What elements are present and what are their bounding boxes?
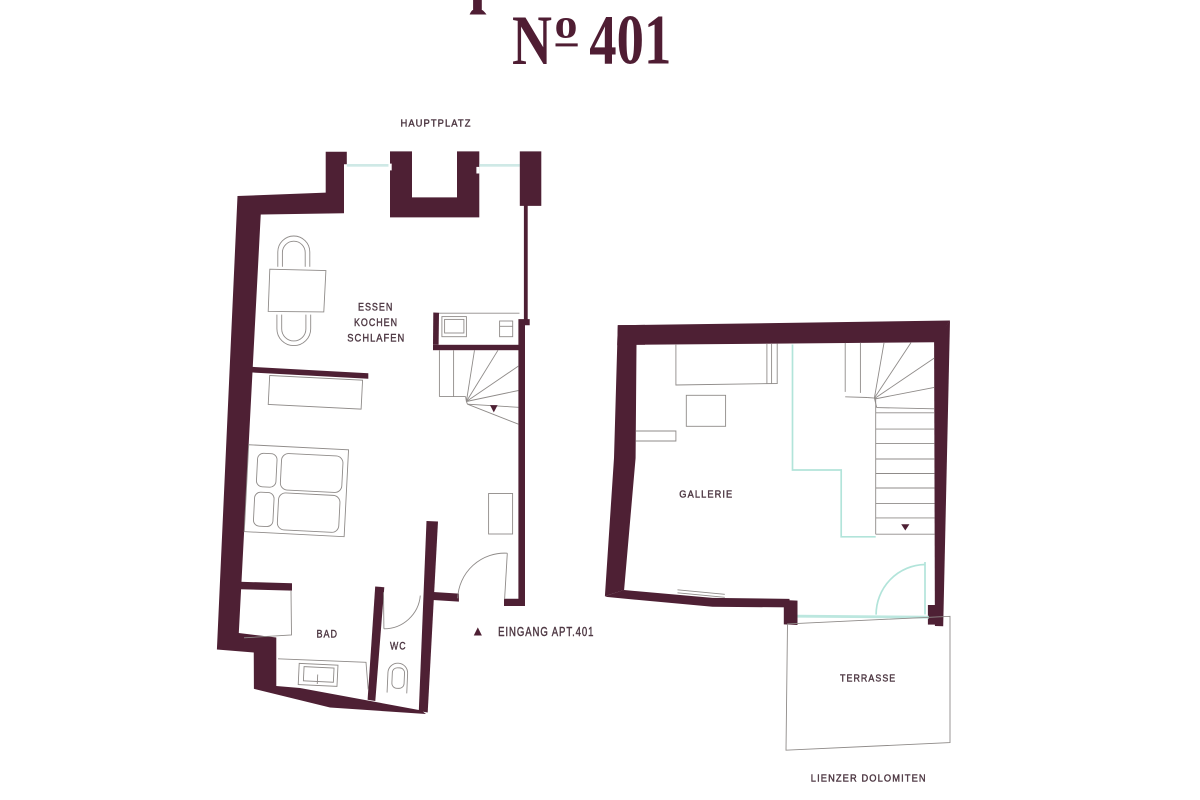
svg-text:EINGANG APT.401: EINGANG APT.401 [498, 625, 594, 639]
svg-text:N: N [512, 2, 552, 80]
svg-text:TERRASSE: TERRASSE [840, 673, 896, 684]
svg-text:SCHLAFEN: SCHLAFEN [347, 332, 405, 344]
svg-text:GALLERIE: GALLERIE [679, 489, 733, 500]
svg-text:ESSEN: ESSEN [358, 302, 393, 314]
svg-text:401: 401 [589, 2, 671, 80]
svg-text:HAUPTPLATZ: HAUPTPLATZ [401, 118, 472, 130]
svg-text:WC: WC [390, 641, 407, 653]
svg-text:KOCHEN: KOCHEN [354, 317, 398, 329]
svg-text:o: o [555, 0, 578, 46]
svg-text:LIENZER DOLOMITEN: LIENZER DOLOMITEN [811, 774, 927, 785]
svg-text:BAD: BAD [317, 629, 339, 641]
